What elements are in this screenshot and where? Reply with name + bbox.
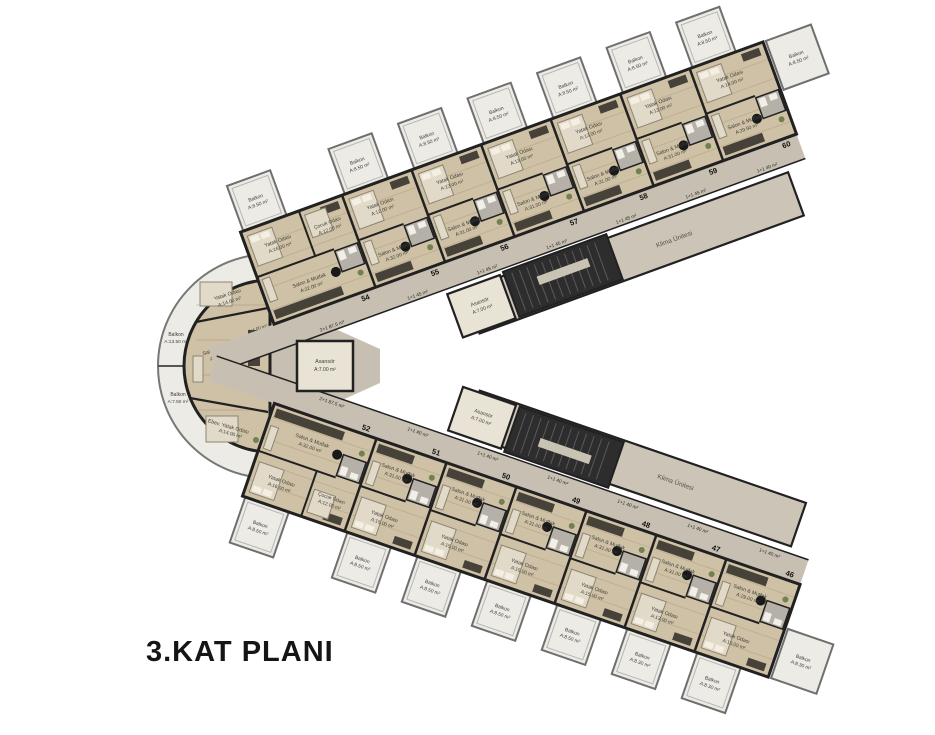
balcony-area: A:7.50 m² xyxy=(168,399,189,405)
floor-plan-page: BalkonA:13.50 m²BalkonA:7.50 m²Yatak Oda… xyxy=(0,0,935,735)
balcony-label: Balkon xyxy=(170,392,186,398)
elevator-label: Asansör xyxy=(315,359,335,365)
balcony-area: A:13.50 m² xyxy=(164,339,188,345)
sofa xyxy=(193,356,203,382)
floor-plan-canvas: BalkonA:13.50 m²BalkonA:7.50 m²Yatak Oda… xyxy=(0,0,935,735)
balcony-label: Balkon xyxy=(168,332,184,338)
elevator xyxy=(297,341,353,391)
elevator-area: A:7.00 m² xyxy=(314,367,336,373)
plant xyxy=(253,437,259,443)
vertex-elevator-core: AsansörA:7.00 m² xyxy=(297,341,353,391)
plan-title: 3.KAT PLANI xyxy=(146,636,334,669)
